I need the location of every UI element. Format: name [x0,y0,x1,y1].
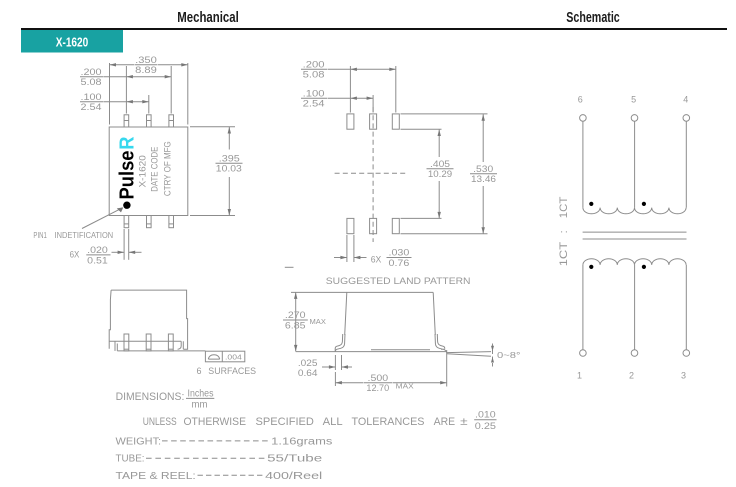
svg-text:10.03: 10.03 [216,163,242,174]
svg-text:1CT: 1CT [558,242,570,267]
svg-text:INDETIFICATION: INDETIFICATION [55,230,114,240]
svg-text:0.25: 0.25 [475,420,496,431]
svg-text:MAX: MAX [396,382,414,391]
svg-text:.010: .010 [475,409,496,420]
svg-text:2: 2 [629,370,634,380]
svg-text:6X: 6X [70,250,80,260]
svg-text:R: R [116,136,139,149]
svg-text:SURFACES: SURFACES [208,365,256,376]
svg-text:±: ± [460,416,468,428]
svg-text:400/Reel: 400/Reel [265,471,322,482]
svg-text:0.64: 0.64 [298,367,318,378]
svg-text:.004: .004 [225,353,242,362]
svg-text:5.08: 5.08 [81,76,102,87]
svg-text:MAX: MAX [310,317,326,326]
svg-text:1.16grams: 1.16grams [271,436,332,447]
svg-text:0.51: 0.51 [87,254,108,265]
svg-text:2.54: 2.54 [81,101,102,112]
svg-text:TUBE:: TUBE: [116,454,145,465]
svg-text:ARE: ARE [434,416,456,428]
svg-text:CTRY OF MFG: CTRY OF MFG [162,141,173,196]
svg-text:4: 4 [683,94,688,104]
svg-text:5.08: 5.08 [303,69,325,80]
svg-text:Mechanical: Mechanical [177,10,239,26]
svg-text:SUGGESTED LAND PATTERN: SUGGESTED LAND PATTERN [326,276,471,287]
svg-text:5: 5 [631,94,636,104]
svg-text:mm: mm [192,399,208,410]
svg-text:TAPE & REEL:: TAPE & REEL: [116,471,196,482]
svg-text:6X: 6X [371,255,382,265]
svg-text:12.70: 12.70 [366,382,389,393]
svg-text:10.29: 10.29 [428,168,452,179]
svg-text:X-1620: X-1620 [137,155,148,187]
svg-text:DATE CODE: DATE CODE [149,147,160,192]
svg-text:X-1620: X-1620 [56,35,89,50]
svg-text:3: 3 [681,370,686,380]
svg-text:UNLESS: UNLESS [143,416,177,428]
svg-text:SPECIFIED: SPECIFIED [256,416,314,428]
svg-text:ALL: ALL [323,416,343,428]
svg-text:PIN1: PIN1 [33,230,47,240]
svg-text:DIMENSIONS:: DIMENSIONS: [116,391,185,403]
svg-text:6.85: 6.85 [285,319,306,330]
svg-text:55/Tube: 55/Tube [267,454,323,465]
svg-text:6: 6 [578,94,583,104]
svg-text:TOLERANCES: TOLERANCES [352,416,425,428]
svg-text:Inches: Inches [188,388,214,399]
svg-text:13.46: 13.46 [471,173,496,184]
svg-text:1CT: 1CT [558,196,570,218]
svg-text::: : [558,230,570,233]
svg-text:0~8°: 0~8° [497,351,521,360]
svg-text:WEIGHT:: WEIGHT: [116,436,162,447]
svg-text:2.54: 2.54 [303,98,325,109]
svg-text:1: 1 [577,370,582,380]
svg-text:8.89: 8.89 [135,64,157,75]
svg-text:6: 6 [197,365,202,376]
svg-text:Schematic: Schematic [566,10,620,26]
svg-text:0.76: 0.76 [389,257,410,268]
svg-text:OTHERWISE: OTHERWISE [184,416,247,428]
svg-text:Pulse: Pulse [116,151,139,200]
